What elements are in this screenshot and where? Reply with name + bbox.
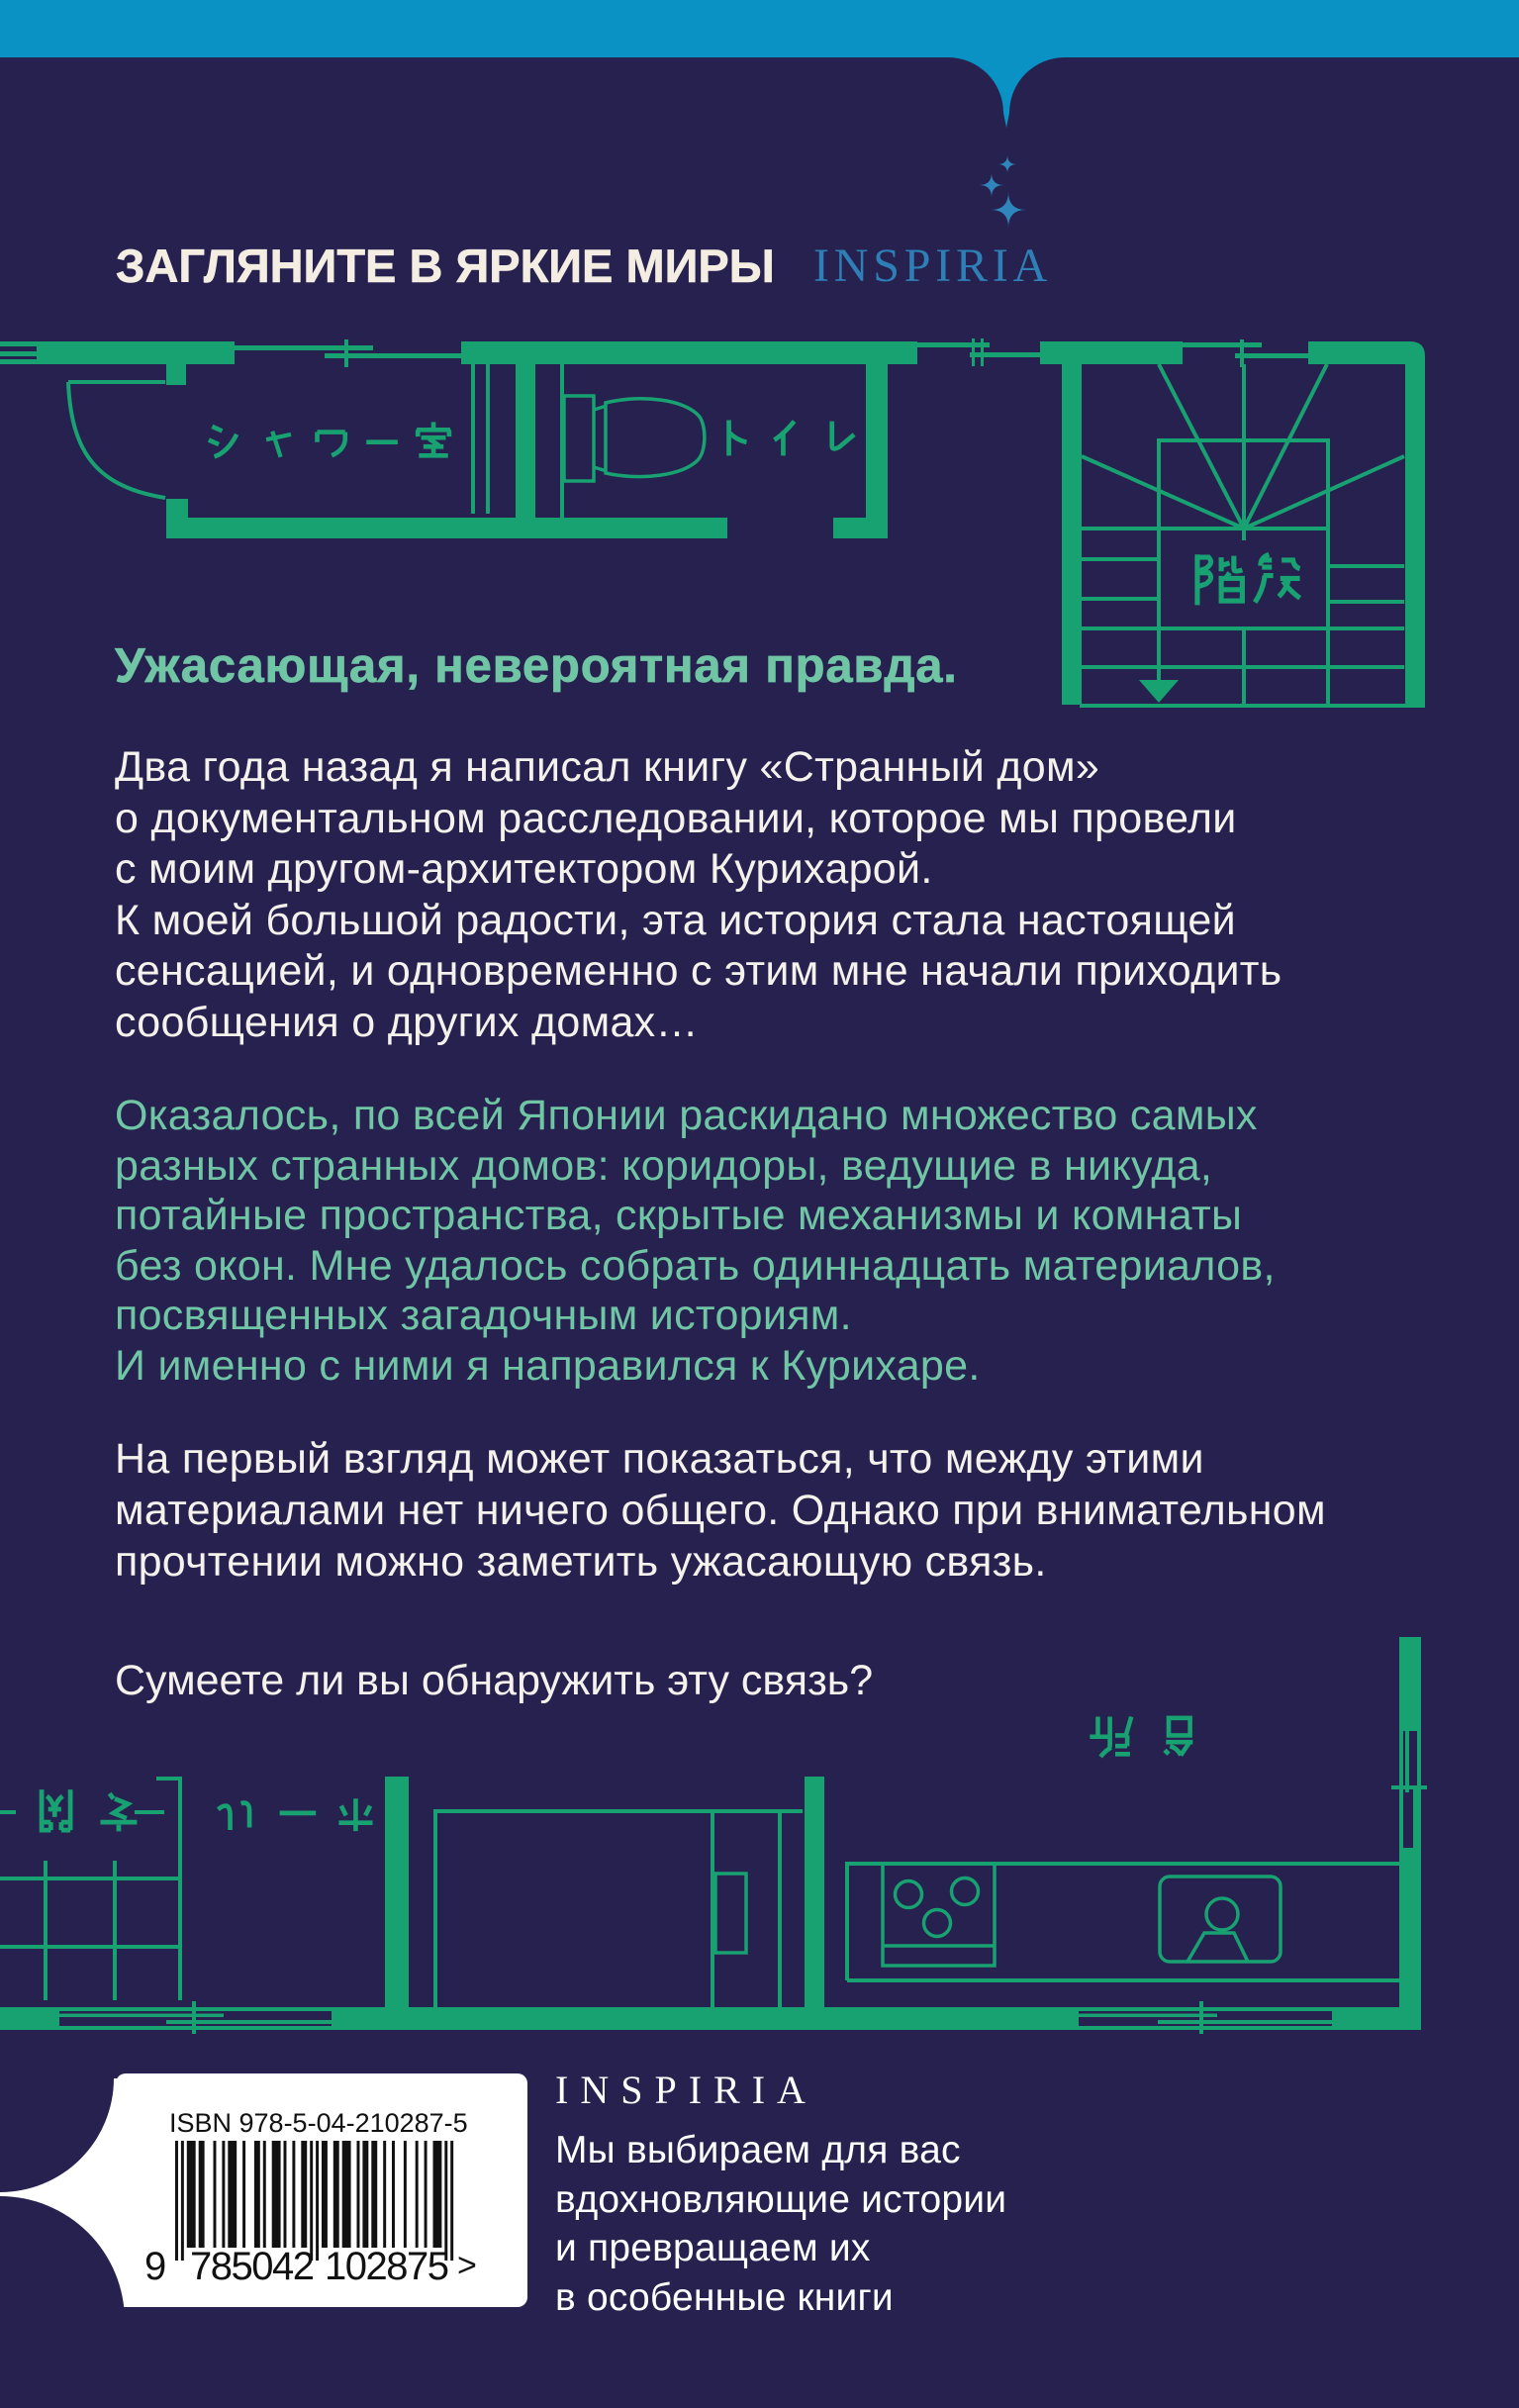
svg-text:>: > bbox=[457, 2247, 477, 2284]
svg-text:9: 9 bbox=[144, 2245, 166, 2288]
svg-text:102875: 102875 bbox=[325, 2245, 448, 2288]
svg-text:785042: 785042 bbox=[190, 2245, 314, 2288]
svg-text:ISBN 978-5-04-210287-5: ISBN 978-5-04-210287-5 bbox=[169, 2108, 468, 2138]
